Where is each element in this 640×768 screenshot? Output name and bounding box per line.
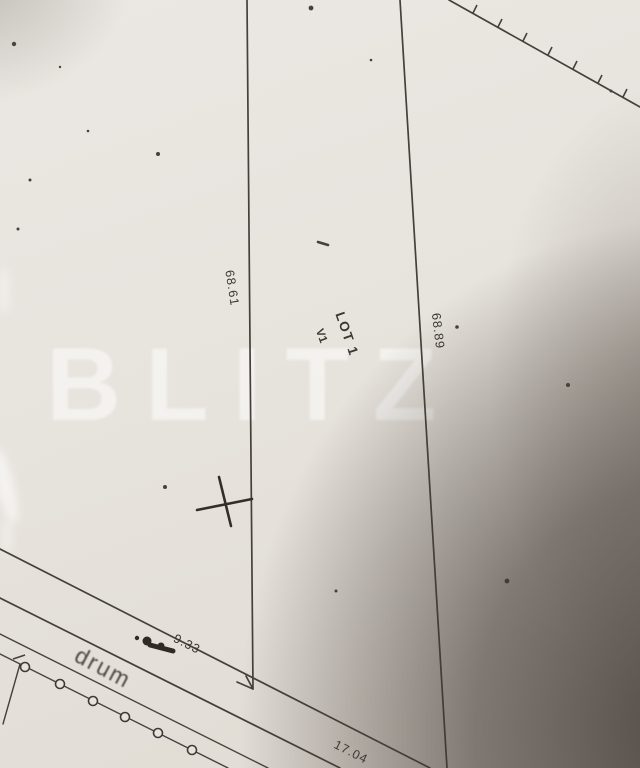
survey-cross-mark xyxy=(197,477,252,526)
cadastral-plan-photo: BLITZ xyxy=(0,0,640,768)
paper-specks xyxy=(12,6,613,593)
branch-tick xyxy=(13,655,25,659)
tick-marks xyxy=(473,5,627,97)
road-line-3 xyxy=(0,634,268,768)
parcel-left-line-arrowhead xyxy=(237,676,253,689)
ink-smudge xyxy=(135,636,173,651)
parcel-left-boundary-line xyxy=(247,0,253,689)
parcel-right-boundary-line xyxy=(400,0,447,768)
road-branch-line xyxy=(3,664,20,724)
road-line-2 xyxy=(0,598,340,768)
road-line-1 xyxy=(0,549,430,768)
